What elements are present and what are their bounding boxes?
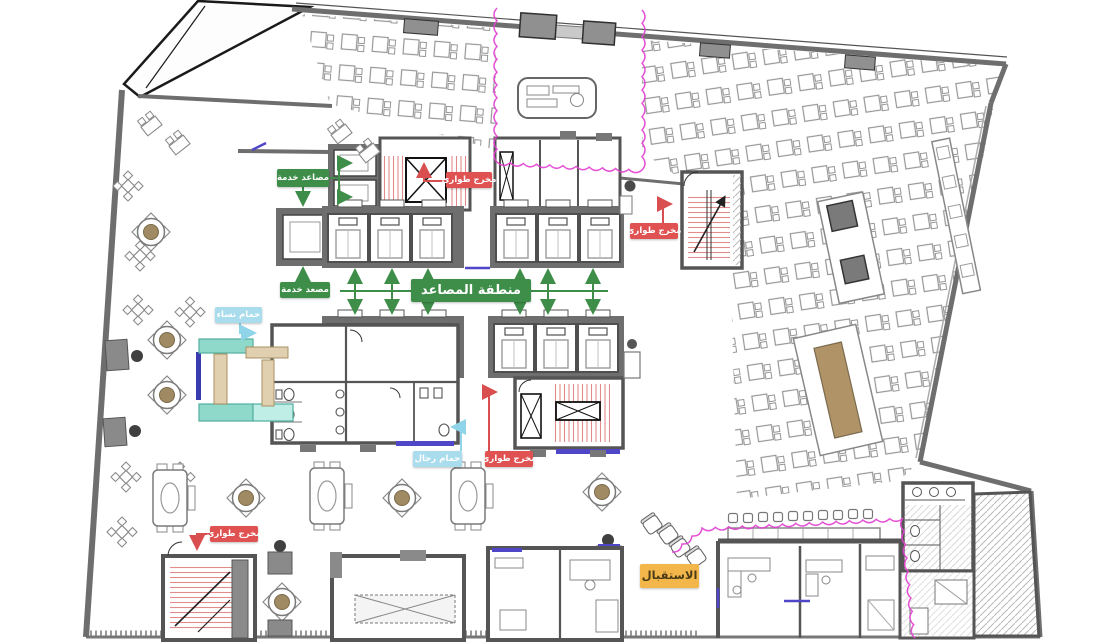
storage-hatched-area	[974, 492, 1039, 636]
offices	[718, 541, 903, 638]
stairwell-bottom-left	[163, 542, 255, 640]
label-women-bathroom: حمام نساء	[215, 307, 262, 323]
label-emergency-exit-top: مخرج طوارئ	[446, 172, 492, 188]
label-service-elevators: مصاعد خدمة	[277, 169, 329, 187]
label-reception: الاستقبال	[640, 564, 699, 588]
stairwell-lower-right	[515, 378, 623, 457]
label-service-elevator: مصعد خدمة	[280, 282, 330, 298]
label-men-bathroom: حمام رجال	[413, 451, 462, 467]
service-stations	[103, 339, 143, 446]
label-emergency-exit-right: مخرج طوارئ	[630, 223, 678, 239]
reception-seating	[640, 512, 707, 568]
label-emergency-exit-center: مخرج طوارئ	[485, 451, 533, 467]
bathroom-block	[272, 325, 458, 452]
elevator-bank-lower-right	[488, 310, 624, 378]
back-office-rooms	[488, 548, 622, 640]
elevator-bank-upper-left	[322, 200, 464, 268]
label-elevators-area: منطقة المصاعد	[411, 279, 531, 302]
bottom-zone	[153, 462, 1039, 640]
floor-plan-drawing	[0, 0, 1110, 642]
label-emergency-exit-bottom-left: مخرج طوارئ	[210, 526, 258, 542]
storage-room	[330, 550, 464, 640]
stairwell-right	[682, 172, 742, 268]
buffet-island	[518, 78, 596, 118]
elevator-bank-upper-right	[490, 200, 624, 268]
floor-plan: مصاعد خدمة مصعد خدمة منطقة المصاعد مخرج …	[0, 0, 1110, 642]
